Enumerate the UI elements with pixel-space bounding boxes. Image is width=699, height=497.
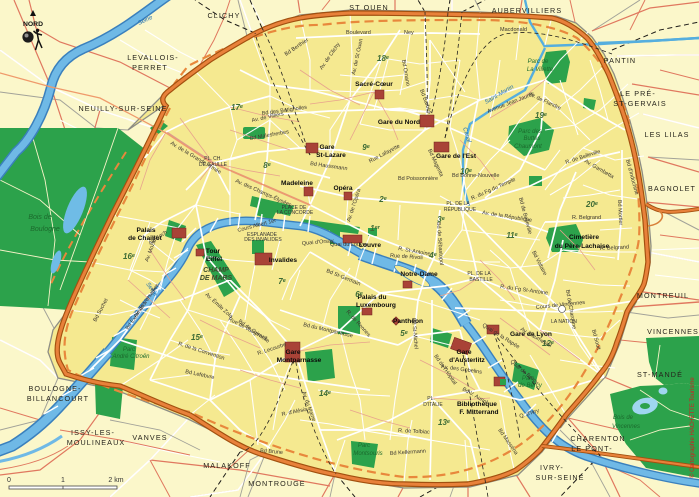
svg-text:PANTIN: PANTIN — [604, 56, 636, 65]
svg-text:Eiffel: Eiffel — [206, 256, 222, 263]
svg-text:DE MARS: DE MARS — [200, 275, 233, 282]
svg-text:Bois de: Bois de — [28, 214, 51, 221]
svg-text:MONTROUGE: MONTROUGE — [248, 479, 305, 488]
svg-text:Cimetière: Cimetière — [569, 234, 599, 241]
svg-text:Gare: Gare — [456, 349, 471, 356]
svg-text:0: 0 — [7, 477, 11, 484]
svg-text:ST-MANDÉ: ST-MANDÉ — [637, 370, 683, 379]
svg-text:Bibliothèque: Bibliothèque — [457, 401, 497, 408]
svg-text:Parc: Parc — [358, 443, 370, 449]
svg-text:de Bercy: de Bercy — [518, 383, 543, 389]
svg-text:Madeleine: Madeleine — [281, 180, 313, 187]
svg-text:Bois de: Bois de — [613, 415, 634, 421]
svg-text:F. Mitterrand: F. Mitterrand — [459, 409, 498, 416]
svg-text:Bd Poissonnière: Bd Poissonnière — [398, 176, 438, 182]
svg-text:Bd Bonne-Nouvelle: Bd Bonne-Nouvelle — [452, 173, 499, 179]
svg-text:d'Austerlitz: d'Austerlitz — [449, 357, 485, 364]
svg-text:SUR-SEINE: SUR-SEINE — [535, 473, 584, 482]
svg-text:LA CONCORDE: LA CONCORDE — [277, 210, 314, 216]
svg-text:VINCENNES: VINCENNES — [647, 327, 699, 336]
svg-text:Parc des: Parc des — [518, 129, 542, 135]
svg-text:CHAMP: CHAMP — [203, 267, 229, 274]
svg-text:Montsouris: Montsouris — [353, 451, 382, 457]
svg-text:MONTREUIL: MONTREUIL — [637, 291, 689, 300]
svg-text:DE GAULLE: DE GAULLE — [199, 162, 228, 168]
svg-text:BILLANCOURT: BILLANCOURT — [27, 394, 89, 403]
svg-text:Boulevard: Boulevard — [346, 30, 371, 36]
svg-text:CLICHY: CLICHY — [208, 11, 241, 20]
svg-text:Gare du Nord: Gare du Nord — [378, 119, 420, 126]
svg-text:Gare de l'Est: Gare de l'Est — [436, 153, 477, 160]
svg-text:Quai du Louvre: Quai du Louvre — [330, 242, 368, 248]
svg-text:PERRET: PERRET — [132, 63, 168, 72]
svg-text:CHARENTON: CHARENTON — [570, 434, 625, 443]
svg-text:LA NATION: LA NATION — [551, 319, 577, 325]
svg-text:Boulogne: Boulogne — [30, 226, 60, 233]
svg-text:1: 1 — [61, 477, 65, 484]
svg-text:MOULINEAUX: MOULINEAUX — [67, 438, 126, 447]
svg-text:LE PONT-: LE PONT- — [571, 444, 613, 453]
svg-text:Chaumont: Chaumont — [514, 144, 542, 150]
svg-text:Macdonald: Macdonald — [500, 27, 527, 33]
svg-text:André Citroën: André Citroën — [111, 354, 150, 360]
svg-text:Luxembourg: Luxembourg — [356, 302, 396, 309]
svg-text:BAGNOLET: BAGNOLET — [648, 184, 696, 193]
svg-text:ISSY-LES-: ISSY-LES- — [71, 428, 115, 437]
svg-text:Opéra: Opéra — [333, 185, 352, 192]
svg-text:Ney: Ney — [404, 30, 414, 36]
svg-text:La Villette: La Villette — [527, 67, 554, 73]
svg-text:Invalides: Invalides — [269, 257, 298, 264]
svg-text:Panthéon: Panthéon — [393, 318, 423, 325]
svg-text:MALAKOFF: MALAKOFF — [203, 461, 251, 470]
svg-text:Sacré-Cœur: Sacré-Cœur — [355, 81, 393, 88]
svg-text:BOULOGNE-: BOULOGNE- — [28, 384, 81, 393]
svg-text:Montparnasse: Montparnasse — [277, 357, 322, 364]
svg-text:Tour: Tour — [206, 248, 221, 255]
svg-text:Notre-Dame: Notre-Dame — [400, 271, 438, 278]
svg-text:LE PRÉ-: LE PRÉ- — [620, 89, 656, 98]
svg-text:NORD: NORD — [23, 21, 43, 28]
svg-text:AUBERVILLIERS: AUBERVILLIERS — [492, 6, 563, 15]
svg-text:St-Lazare: St-Lazare — [316, 152, 346, 159]
svg-text:Parc de: Parc de — [528, 59, 549, 65]
svg-text:NEUILLY-SUR-SEINE: NEUILLY-SUR-SEINE — [79, 104, 168, 113]
svg-text:Vincennes: Vincennes — [612, 424, 640, 430]
svg-text:Buttes: Buttes — [523, 136, 540, 142]
svg-text:Palais: Palais — [136, 227, 155, 234]
svg-text:LEVALLOIS-: LEVALLOIS- — [127, 53, 179, 62]
svg-text:BASTILLE: BASTILLE — [469, 277, 493, 283]
svg-text:ST-GERVAIS: ST-GERVAIS — [613, 99, 666, 108]
svg-text:RÉPUBLIQUE: RÉPUBLIQUE — [444, 206, 477, 213]
svg-text:DES INVALIDES: DES INVALIDES — [244, 237, 282, 243]
svg-text:LES LILAS: LES LILAS — [644, 130, 689, 139]
svg-text:VANVES: VANVES — [132, 433, 167, 442]
svg-text:Gare: Gare — [319, 144, 334, 151]
svg-text:© Cartographie HACHETTE Touris: © Cartographie HACHETTE Tourisme — [689, 377, 696, 478]
svg-text:Parc: Parc — [123, 347, 135, 353]
svg-text:Gare: Gare — [285, 349, 300, 356]
svg-text:IVRY-: IVRY- — [540, 463, 564, 472]
svg-text:D'ITALIE: D'ITALIE — [423, 402, 443, 408]
svg-text:2 km: 2 km — [108, 477, 123, 484]
svg-text:R. Belgrand: R. Belgrand — [572, 215, 601, 221]
svg-text:ST OUEN: ST OUEN — [349, 3, 389, 12]
